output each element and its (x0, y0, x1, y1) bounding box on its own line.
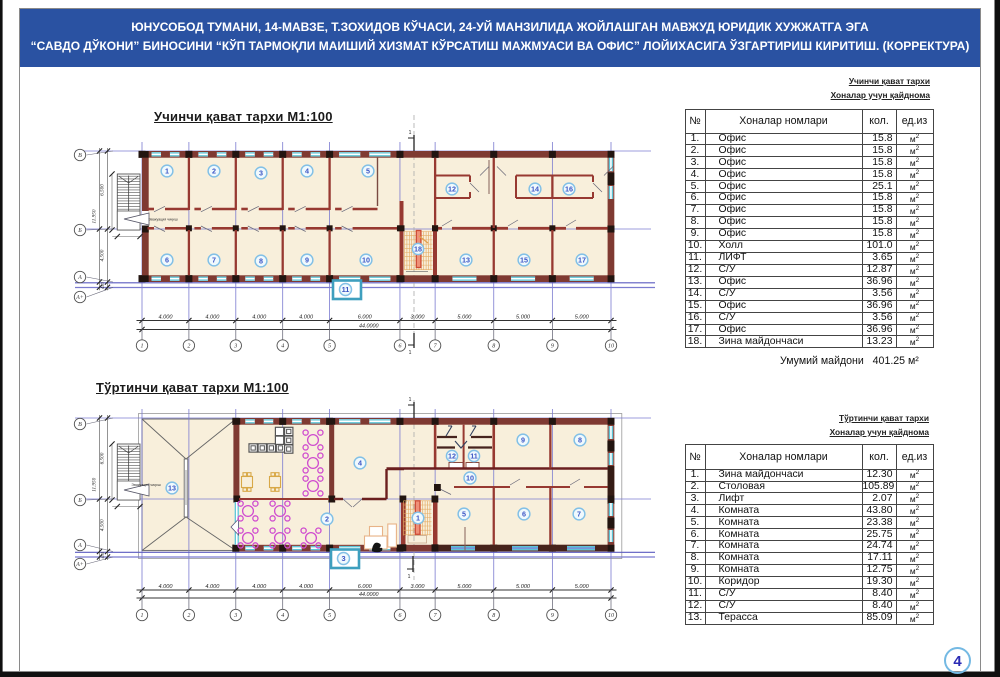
svg-text:1: 1 (165, 167, 169, 176)
svg-text:3: 3 (233, 613, 237, 619)
svg-text:44.0000: 44.0000 (359, 324, 379, 330)
svg-text:44.0000: 44.0000 (359, 592, 379, 598)
svg-text:16: 16 (565, 185, 573, 194)
svg-text:6: 6 (398, 344, 401, 350)
svg-text:4: 4 (281, 612, 284, 619)
svg-text:5: 5 (328, 344, 331, 350)
svg-text:4.500: 4.500 (99, 519, 106, 531)
svg-text:4.000: 4.000 (205, 314, 220, 320)
svg-text:1: 1 (141, 613, 144, 619)
svg-text:5: 5 (462, 510, 466, 519)
svg-text:2: 2 (212, 167, 216, 176)
svg-text:4: 4 (305, 167, 309, 176)
svg-text:А+: А+ (75, 562, 84, 568)
svg-text:3.000: 3.000 (411, 584, 426, 590)
svg-text:1: 1 (416, 514, 420, 523)
svg-text:5.000: 5.000 (575, 314, 590, 320)
svg-text:4.000: 4.000 (299, 314, 314, 320)
svg-text:4.000: 4.000 (205, 584, 220, 590)
svg-text:1: 1 (409, 397, 412, 403)
svg-text:3: 3 (341, 554, 345, 563)
svg-text:5.000: 5.000 (575, 584, 590, 590)
svg-text:5.000: 5.000 (516, 584, 531, 590)
svg-text:9: 9 (551, 344, 554, 350)
svg-text:3.000: 3.000 (411, 314, 426, 320)
svg-text:Эвакуация чиқиш: Эвакуация чиқиш (148, 218, 177, 222)
svg-text:5.000: 5.000 (457, 584, 472, 590)
svg-text:В: В (78, 422, 82, 428)
svg-text:6.000: 6.000 (358, 314, 373, 320)
svg-text:1: 1 (408, 574, 411, 580)
svg-text:Б: Б (77, 228, 82, 234)
svg-text:4.000: 4.000 (158, 584, 173, 590)
svg-text:7: 7 (577, 510, 581, 519)
svg-text:10: 10 (608, 613, 614, 619)
svg-text:12: 12 (448, 185, 456, 194)
svg-text:12: 12 (448, 452, 456, 461)
svg-text:2: 2 (187, 613, 190, 619)
svg-text:450: 450 (100, 282, 105, 289)
svg-text:4.500: 4.500 (99, 249, 106, 261)
svg-text:11.950: 11.950 (92, 477, 98, 491)
svg-text:5.000: 5.000 (457, 314, 472, 320)
svg-text:8: 8 (259, 257, 263, 266)
svg-text:Б: Б (77, 498, 82, 504)
svg-text:6: 6 (165, 256, 169, 265)
svg-text:8: 8 (578, 436, 582, 445)
svg-text:10: 10 (608, 344, 614, 350)
svg-text:9: 9 (305, 256, 309, 265)
svg-text:4: 4 (358, 459, 362, 468)
svg-text:9: 9 (551, 613, 554, 619)
svg-text:13: 13 (462, 256, 470, 265)
svg-text:4.000: 4.000 (158, 314, 173, 320)
svg-text:4.000: 4.000 (299, 584, 314, 590)
svg-text:11: 11 (470, 452, 478, 461)
svg-text:А: А (77, 275, 82, 281)
svg-text:8: 8 (492, 613, 495, 619)
svg-text:3: 3 (259, 169, 263, 178)
svg-text:13: 13 (168, 484, 176, 493)
svg-text:5.000: 5.000 (516, 314, 531, 320)
svg-text:Эвакуация чиқиш: Эвакуация чиқиш (131, 483, 160, 487)
svg-text:6.000: 6.000 (358, 584, 373, 590)
svg-text:10: 10 (466, 474, 474, 483)
svg-text:6.500: 6.500 (100, 452, 106, 464)
svg-text:В: В (78, 153, 82, 159)
svg-text:1: 1 (409, 350, 412, 356)
svg-text:3: 3 (233, 344, 237, 350)
svg-text:4.000: 4.000 (252, 314, 267, 320)
svg-text:А: А (77, 543, 82, 549)
svg-text:6: 6 (398, 613, 401, 619)
svg-text:11: 11 (342, 285, 350, 294)
svg-text:1: 1 (409, 130, 412, 136)
svg-text:2: 2 (187, 344, 190, 350)
svg-text:4: 4 (281, 343, 284, 350)
svg-text:6.500: 6.500 (100, 184, 106, 196)
svg-text:6: 6 (522, 510, 526, 519)
svg-text:14: 14 (531, 185, 539, 194)
svg-text:9: 9 (521, 436, 525, 445)
svg-text:1: 1 (141, 344, 144, 350)
svg-text:4.000: 4.000 (252, 584, 267, 590)
svg-text:7: 7 (212, 256, 216, 265)
svg-text:15: 15 (520, 256, 528, 265)
svg-text:8: 8 (492, 344, 495, 350)
svg-text:А+: А+ (75, 295, 84, 301)
svg-text:11.950: 11.950 (92, 209, 98, 223)
svg-text:5: 5 (328, 613, 331, 619)
svg-text:5: 5 (366, 167, 370, 176)
svg-text:18: 18 (414, 245, 422, 254)
svg-text:450: 450 (100, 551, 105, 558)
svg-text:2: 2 (325, 515, 329, 524)
svg-text:17: 17 (578, 256, 586, 265)
svg-text:10: 10 (362, 256, 370, 265)
